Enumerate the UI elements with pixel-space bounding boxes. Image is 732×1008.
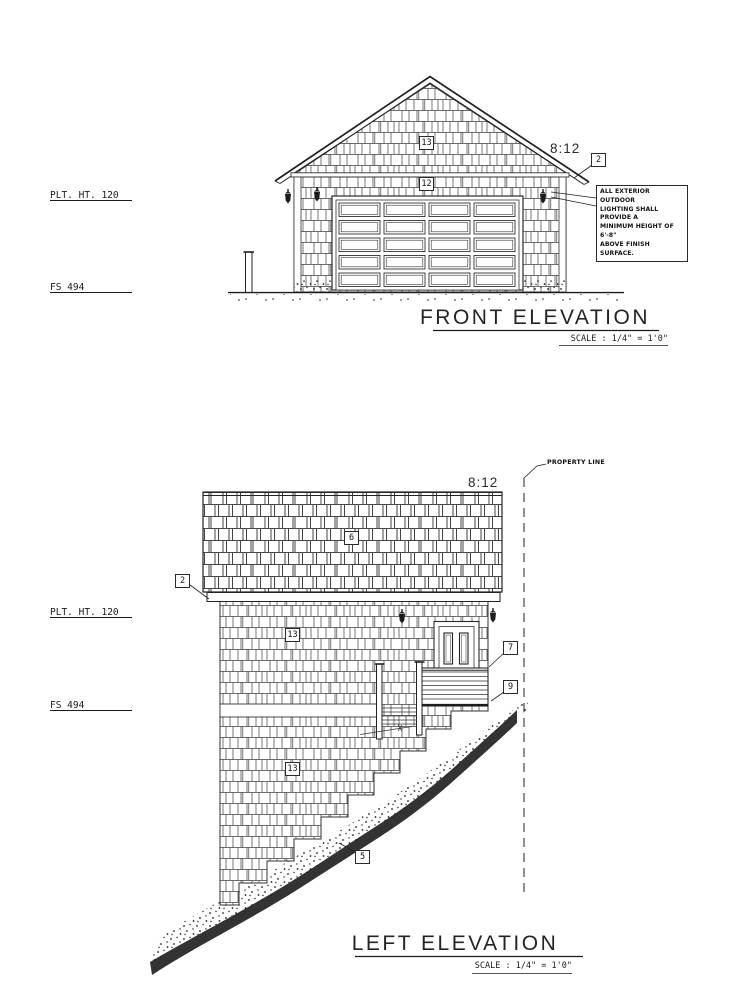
exterior-light-icon <box>285 189 291 204</box>
exterior-lighting-note: ALL EXTERIOR OUTDOOR LIGHTING SHALL PROV… <box>596 185 688 262</box>
elevation-drawing-sheet: PLT. HT. 120 FS 494 8:12 2 13 12 ALL EXT… <box>0 0 732 1008</box>
entry-door <box>434 622 479 669</box>
garage-door <box>332 196 523 290</box>
left-elevation-scale: SCALE : 1/4" = 1'0" <box>460 961 572 971</box>
left-plate-height-label: PLT. HT. 120 <box>50 607 119 618</box>
front-elevation-scale: SCALE : 1/4" = 1'0" <box>556 334 668 344</box>
callout-left-wall-siding-lower: 13 <box>285 762 300 776</box>
property-line-label: PROPERTY LINE <box>547 459 605 466</box>
note-line: ALL EXTERIOR OUTDOOR <box>600 188 684 206</box>
callout-deck-rail: 7 <box>503 641 518 655</box>
left-roof-pitch-label: 8:12 <box>468 475 498 490</box>
front-corner-trim-left <box>294 177 301 292</box>
front-roof-pitch-label: 8:12 <box>550 141 580 156</box>
left-finish-surface-label: FS 494 <box>50 700 84 711</box>
note-line: LIGHTING SHALL PROVIDE A <box>600 206 684 224</box>
callout-footing: 5 <box>355 850 370 864</box>
front-gable-siding <box>294 84 566 173</box>
front-foundation-left <box>294 281 333 293</box>
front-ground-line <box>228 293 624 302</box>
deck-rail <box>421 668 488 706</box>
exterior-light-icon <box>490 608 496 623</box>
yard-post <box>244 252 255 293</box>
left-trim-band <box>220 704 378 717</box>
callout-grade: 9 <box>503 680 518 694</box>
note-line: ABOVE FINISH SURFACE. <box>600 241 684 259</box>
front-plate-height-label: PLT. HT. 120 <box>50 190 119 201</box>
callout-front-roof-edge: 2 <box>591 153 606 167</box>
left-elevation-title: LEFT ELEVATION <box>335 932 575 956</box>
front-foundation-right <box>522 281 566 293</box>
callout-left-roof-shingles: 6 <box>344 531 359 545</box>
front-finish-surface-label: FS 494 <box>50 282 84 293</box>
note-line: MINIMUM HEIGHT OF 6'-8" <box>600 223 684 241</box>
property-line <box>524 464 546 893</box>
left-elevation-drawing <box>50 464 583 975</box>
callout-left-wall-siding-upper: 13 <box>285 628 300 642</box>
callout-left-roof-edge: 2 <box>175 574 190 588</box>
front-elevation-title: FRONT ELEVATION <box>415 306 655 330</box>
callout-front-gable-siding: 13 <box>419 136 434 150</box>
callout-front-wall-siding: 12 <box>419 177 434 191</box>
left-fascia-board <box>207 593 500 602</box>
